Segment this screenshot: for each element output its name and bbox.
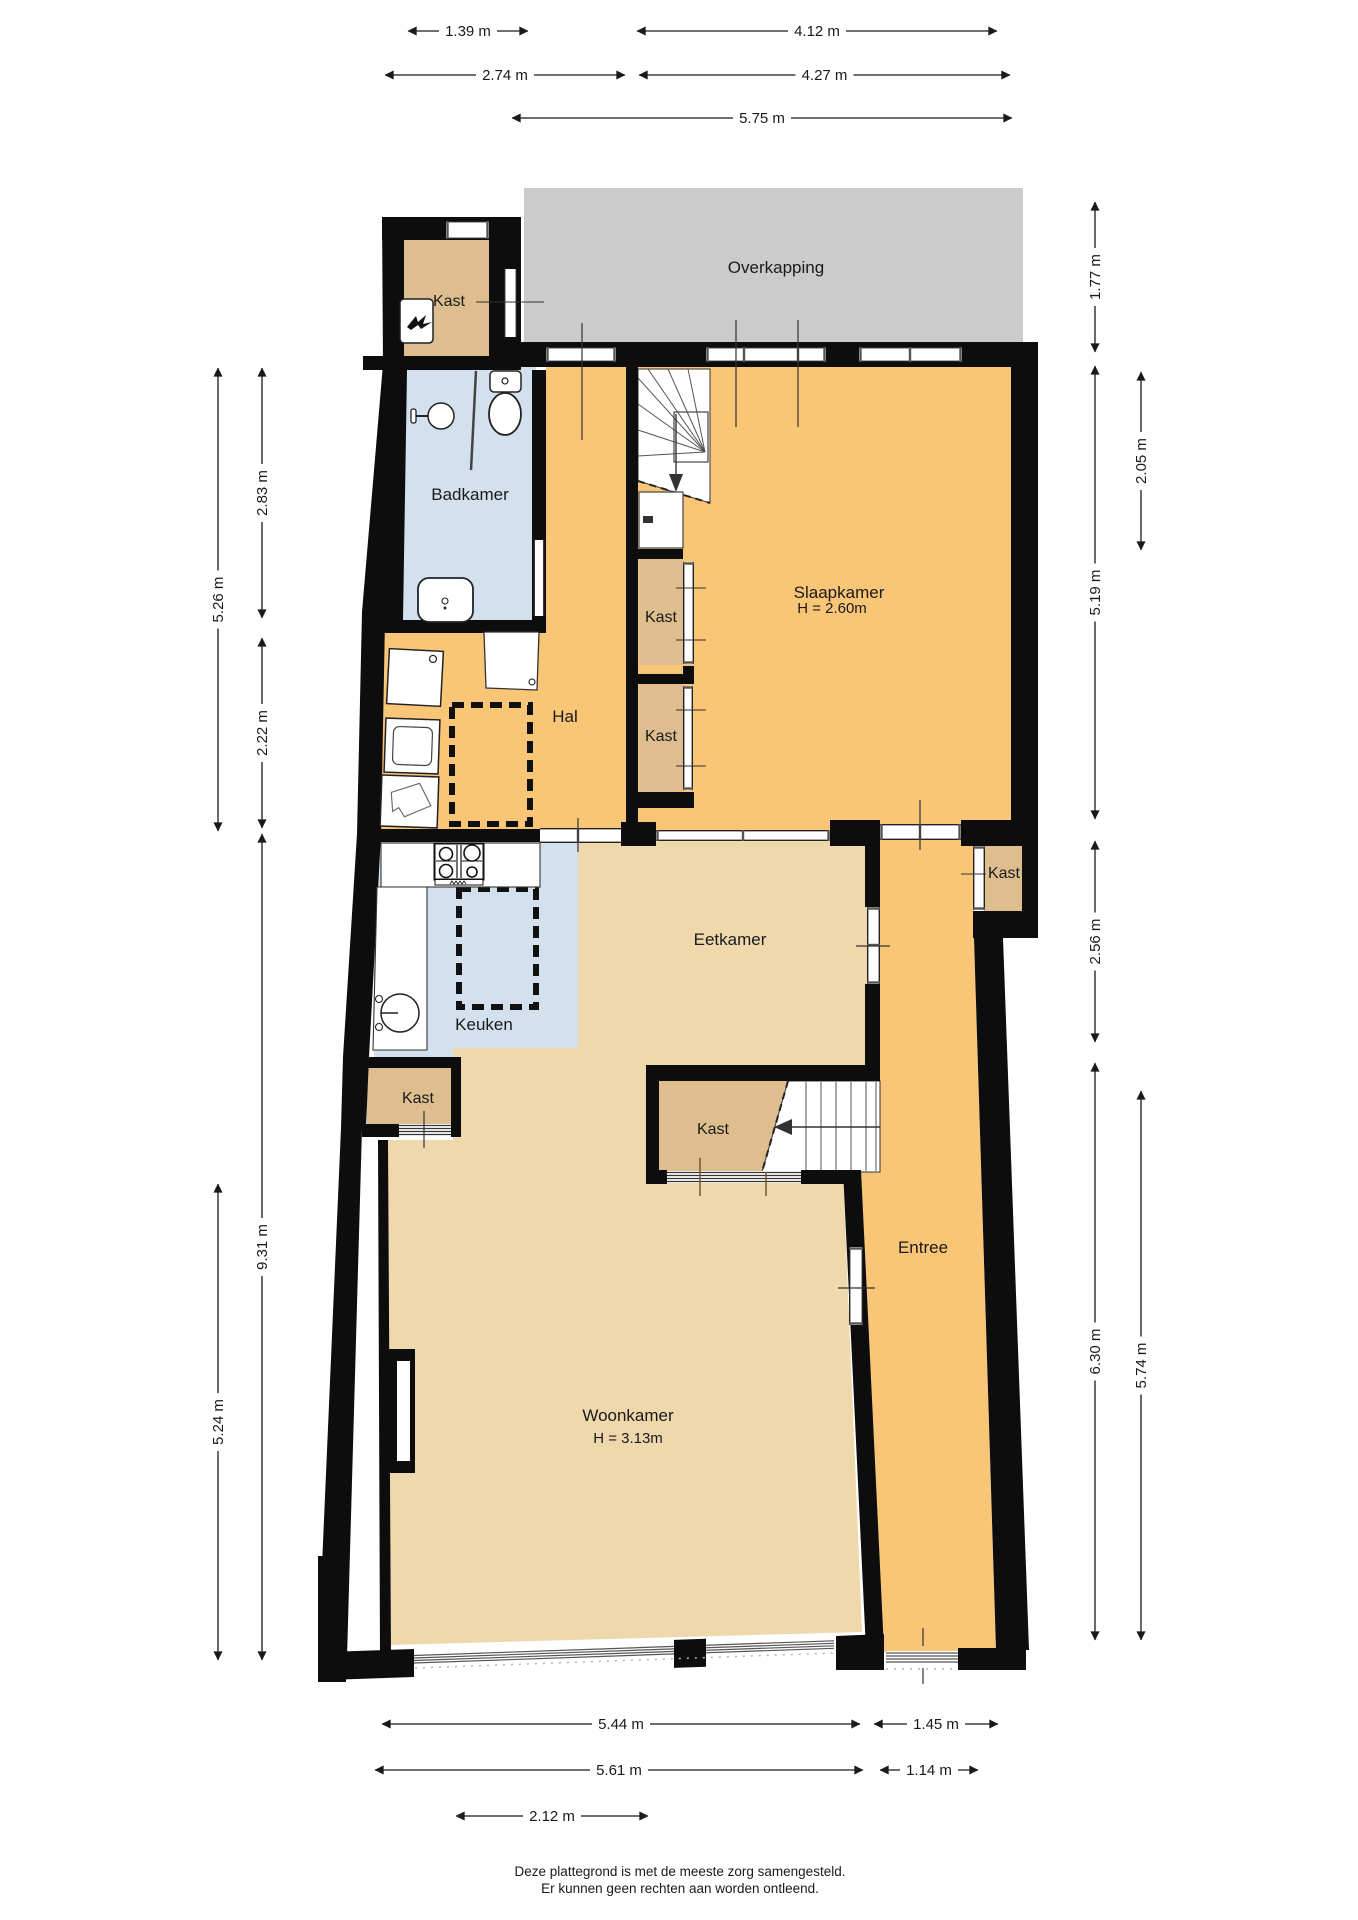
svg-text:2.05 m: 2.05 m (1133, 438, 1150, 484)
svg-text:5.26 m: 5.26 m (210, 577, 227, 623)
svg-text:1.14 m: 1.14 m (906, 1762, 952, 1779)
svg-text:2.56 m: 2.56 m (1087, 919, 1104, 965)
svg-text:Badkamer: Badkamer (431, 485, 509, 504)
svg-text:H = 3.13m: H = 3.13m (593, 1430, 663, 1447)
svg-text:Kast: Kast (697, 1121, 730, 1138)
svg-text:Kast: Kast (988, 865, 1021, 882)
svg-text:5.44 m: 5.44 m (598, 1716, 644, 1733)
svg-text:Keuken: Keuken (455, 1015, 513, 1034)
svg-text:2.22 m: 2.22 m (254, 710, 271, 756)
svg-text:2.74 m: 2.74 m (482, 67, 528, 84)
svg-text:Overkapping: Overkapping (728, 258, 824, 277)
svg-text:Eetkamer: Eetkamer (694, 930, 767, 949)
svg-text:5.24 m: 5.24 m (210, 1399, 227, 1445)
svg-text:Er kunnen geen rechten aan wor: Er kunnen geen rechten aan worden ontlee… (541, 1881, 819, 1896)
svg-text:1.45 m: 1.45 m (913, 1716, 959, 1733)
svg-text:Deze plattegrond is met de mee: Deze plattegrond is met de meeste zorg s… (515, 1864, 846, 1879)
svg-text:9.31 m: 9.31 m (254, 1224, 271, 1270)
svg-text:4.27 m: 4.27 m (802, 67, 848, 84)
svg-text:Kast: Kast (402, 1090, 435, 1107)
svg-text:5.61 m: 5.61 m (596, 1762, 642, 1779)
svg-text:1.77 m: 1.77 m (1087, 254, 1104, 300)
svg-text:2.12 m: 2.12 m (529, 1808, 575, 1825)
svg-text:5.74 m: 5.74 m (1133, 1343, 1150, 1389)
svg-text:5.19 m: 5.19 m (1087, 570, 1104, 616)
svg-text:Entree: Entree (898, 1238, 948, 1257)
svg-text:2.83 m: 2.83 m (254, 470, 271, 516)
svg-text:Kast: Kast (645, 728, 678, 745)
svg-text:H = 2.60m: H = 2.60m (797, 600, 867, 617)
svg-text:Woonkamer: Woonkamer (582, 1406, 674, 1425)
svg-text:4.12 m: 4.12 m (794, 23, 840, 40)
svg-text:5.75 m: 5.75 m (739, 110, 785, 127)
svg-text:6.30 m: 6.30 m (1087, 1329, 1104, 1375)
svg-text:Kast: Kast (645, 609, 678, 626)
svg-text:Hal: Hal (552, 707, 578, 726)
svg-text:1.39 m: 1.39 m (445, 23, 491, 40)
svg-text:Kast: Kast (433, 293, 466, 310)
